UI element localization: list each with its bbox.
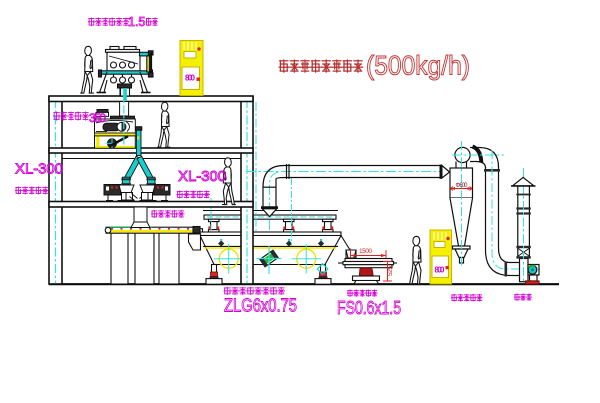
svg-text:FS0.6x1.5: FS0.6x1.5 [337, 298, 401, 318]
svg-text:(500kg/h): (500kg/h) [366, 51, 470, 81]
svg-text:1.5: 1.5 [128, 15, 145, 29]
svg-text:350: 350 [89, 111, 106, 125]
svg-text:XL-300: XL-300 [15, 161, 63, 178]
svg-text:XL-300: XL-300 [178, 168, 226, 185]
svg-text:1500: 1500 [359, 248, 372, 255]
svg-text:800: 800 [185, 74, 196, 83]
svg-text:800: 800 [435, 266, 446, 275]
svg-text:ZLG6x0.75: ZLG6x0.75 [224, 296, 297, 316]
svg-text:525: 525 [387, 266, 394, 276]
svg-text:Φ600: Φ600 [456, 183, 469, 189]
